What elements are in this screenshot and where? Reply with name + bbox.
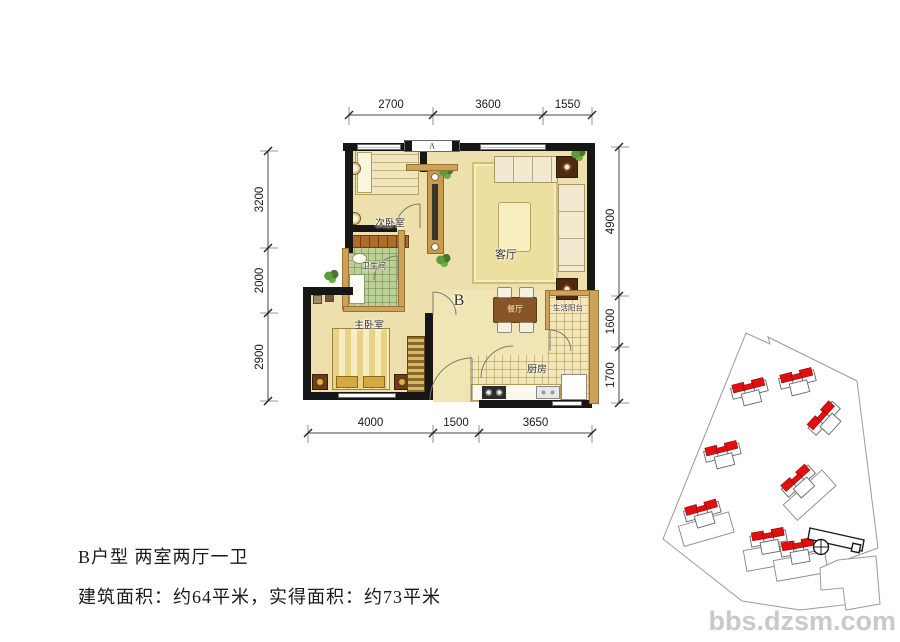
dimension-label: 1600 [605,309,617,335]
dimension-label: 2700 [378,99,404,111]
dimension-label: 1700 [605,362,617,388]
page: { "plan": { "rooms": { "secondary_bedroo… [0,0,900,642]
dimension-label: 3600 [475,99,501,111]
watermark: bbs.dzsm.com [708,606,896,637]
dimension-label: 1550 [555,99,581,111]
dimension-label: 4900 [605,209,617,235]
dimension-label: 2000 [254,268,266,294]
site-plan [648,318,900,622]
unit-type-title: B户型 两室两厅一卫 [78,543,249,569]
dimension-label: 3650 [523,417,549,429]
dimension-label: 3200 [254,187,266,213]
dimension-label: 4000 [358,417,384,429]
dimension-label: 1500 [443,417,469,429]
dimension-label: 2900 [254,344,266,370]
area-info: 建筑面积：约64平米，实得面积：约73平米 [78,583,441,609]
